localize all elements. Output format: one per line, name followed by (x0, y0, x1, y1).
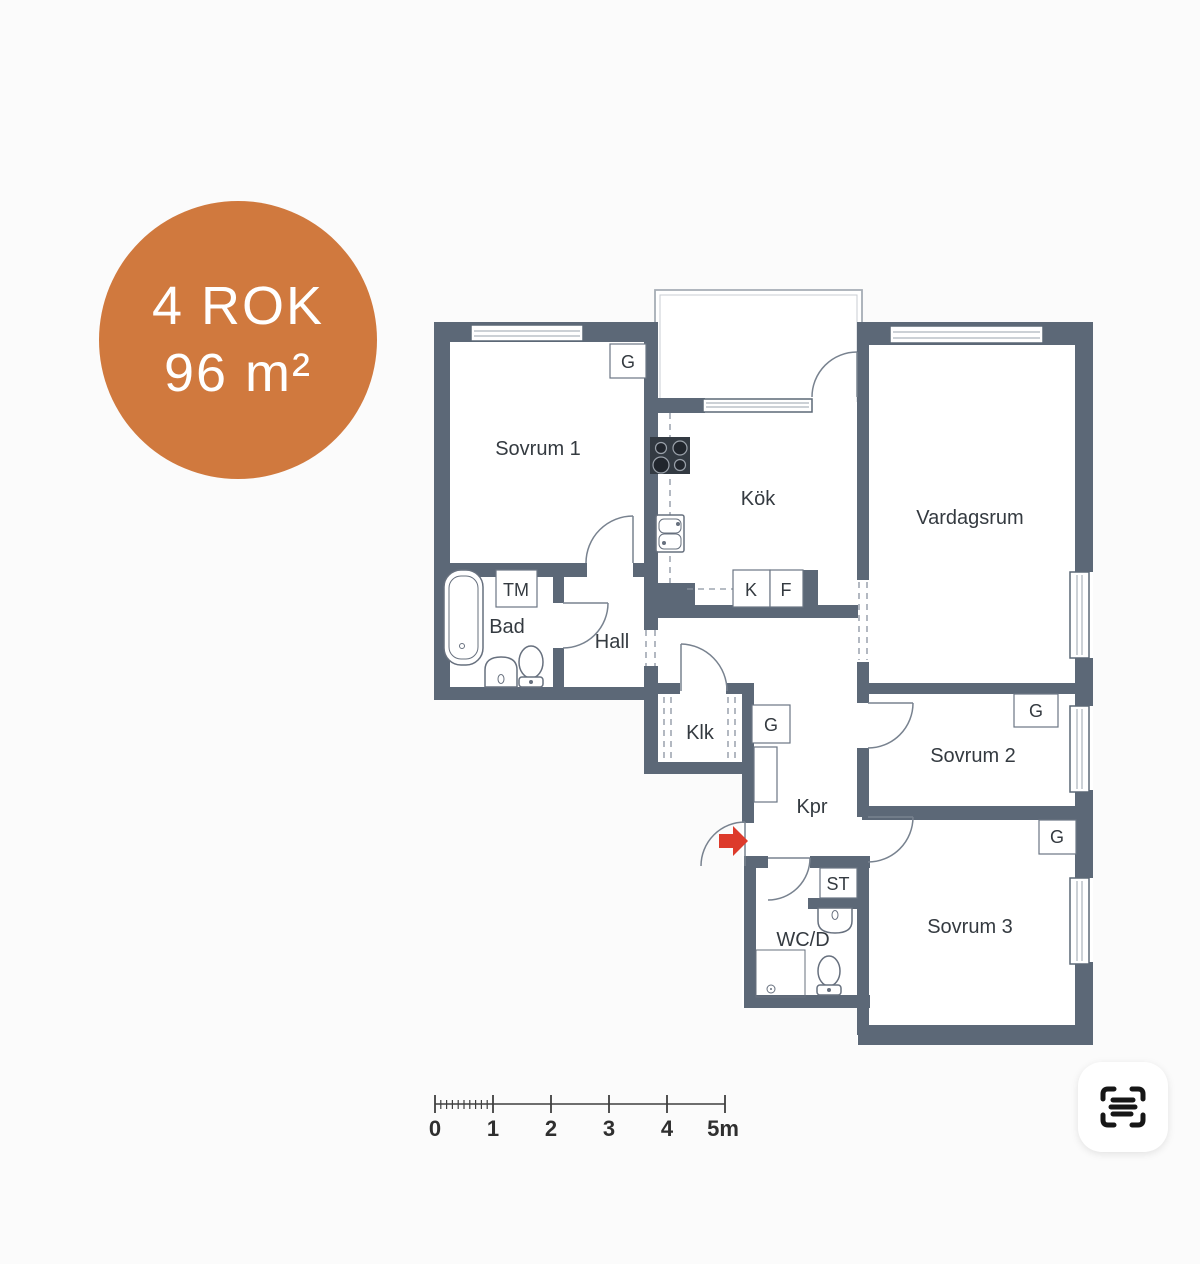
scale-2: 2 (545, 1116, 557, 1141)
kitchen-sink (656, 515, 684, 552)
room-label-kok: Kök (741, 488, 776, 510)
lens-scan-button[interactable] (1078, 1062, 1168, 1152)
scale-4: 4 (661, 1116, 674, 1141)
label-g4: G (1050, 827, 1064, 847)
room-label-kpr: Kpr (796, 796, 827, 818)
room-label-wcd: WC/D (776, 929, 829, 951)
room-label-sovrum2: Sovrum 2 (930, 745, 1016, 767)
room-label-sovrum1: Sovrum 1 (495, 438, 581, 460)
wc-toilet (818, 956, 840, 986)
label-g2: G (764, 715, 778, 735)
label-f: F (781, 580, 792, 600)
label-k: K (745, 580, 757, 600)
screenshot-stage: 4 ROK 96 m² (0, 0, 1200, 1264)
room-label-sovrum3: Sovrum 3 (927, 916, 1013, 938)
scale-5m: 5m (707, 1116, 739, 1141)
bath-sink (485, 657, 517, 687)
scale-3: 3 (603, 1116, 615, 1141)
scan-frame-icon (1100, 1086, 1146, 1128)
label-st: ST (826, 874, 849, 894)
label-g3: G (1029, 701, 1043, 721)
floorplan: Sovrum 1 Kök Vardagsrum Bad Hall Klk Kpr… (0, 0, 1200, 1264)
room-label-bad: Bad (489, 616, 525, 638)
label-tm: TM (503, 580, 529, 600)
room-label-klk: Klk (686, 722, 715, 744)
scale-0: 0 (429, 1116, 441, 1141)
label-g1: G (621, 352, 635, 372)
stove (650, 437, 690, 474)
bath-toilet (519, 646, 543, 678)
scale-1: 1 (487, 1116, 499, 1141)
room-label-vardagsrum: Vardagsrum (916, 507, 1023, 529)
hall-closet (754, 747, 777, 802)
scale-bar: 0 1 2 3 4 5m (429, 1095, 739, 1141)
room-label-hall: Hall (595, 631, 629, 653)
